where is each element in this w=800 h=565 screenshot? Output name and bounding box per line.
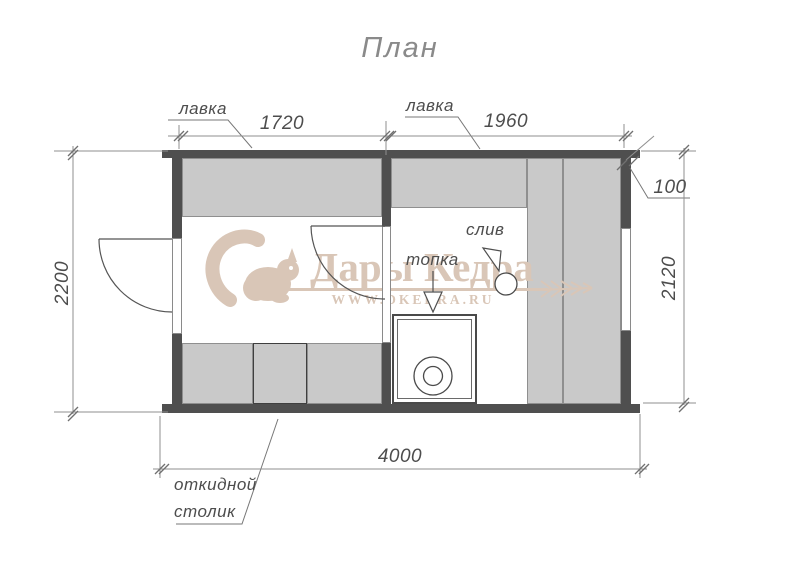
dim-wall-offset: 100 bbox=[647, 177, 693, 199]
stove-burner-icon bbox=[414, 357, 452, 395]
stove-arrow-icon bbox=[424, 271, 442, 312]
leader-bench-right bbox=[405, 117, 480, 149]
label-folding-table-line1: откидной bbox=[174, 475, 257, 495]
floor-plan-drawing: План Дары Кедра WWW.DKEDRA.RU bbox=[0, 0, 800, 565]
dim-total-width: 4000 bbox=[368, 446, 432, 468]
dim-height-left: 2200 bbox=[52, 243, 74, 323]
dim-room-left-width: 1720 bbox=[250, 113, 314, 135]
label-bench-left: лавка bbox=[179, 99, 227, 119]
dimension-tick bbox=[629, 156, 639, 166]
door-interior-swing bbox=[311, 226, 385, 299]
dim-room-right-width: 1960 bbox=[474, 111, 538, 133]
label-drain: слив bbox=[466, 220, 504, 240]
dimension-tick bbox=[617, 160, 627, 170]
label-bench-right: лавка bbox=[406, 96, 454, 116]
label-stove: топка bbox=[406, 250, 459, 270]
dim-height-right: 2120 bbox=[659, 238, 681, 318]
drain-arrow-icon bbox=[483, 248, 501, 271]
dimension-lines bbox=[54, 121, 696, 478]
label-folding-table-line2: столик bbox=[174, 502, 236, 522]
drain-icon bbox=[495, 273, 517, 295]
door-left-swing bbox=[99, 239, 172, 312]
